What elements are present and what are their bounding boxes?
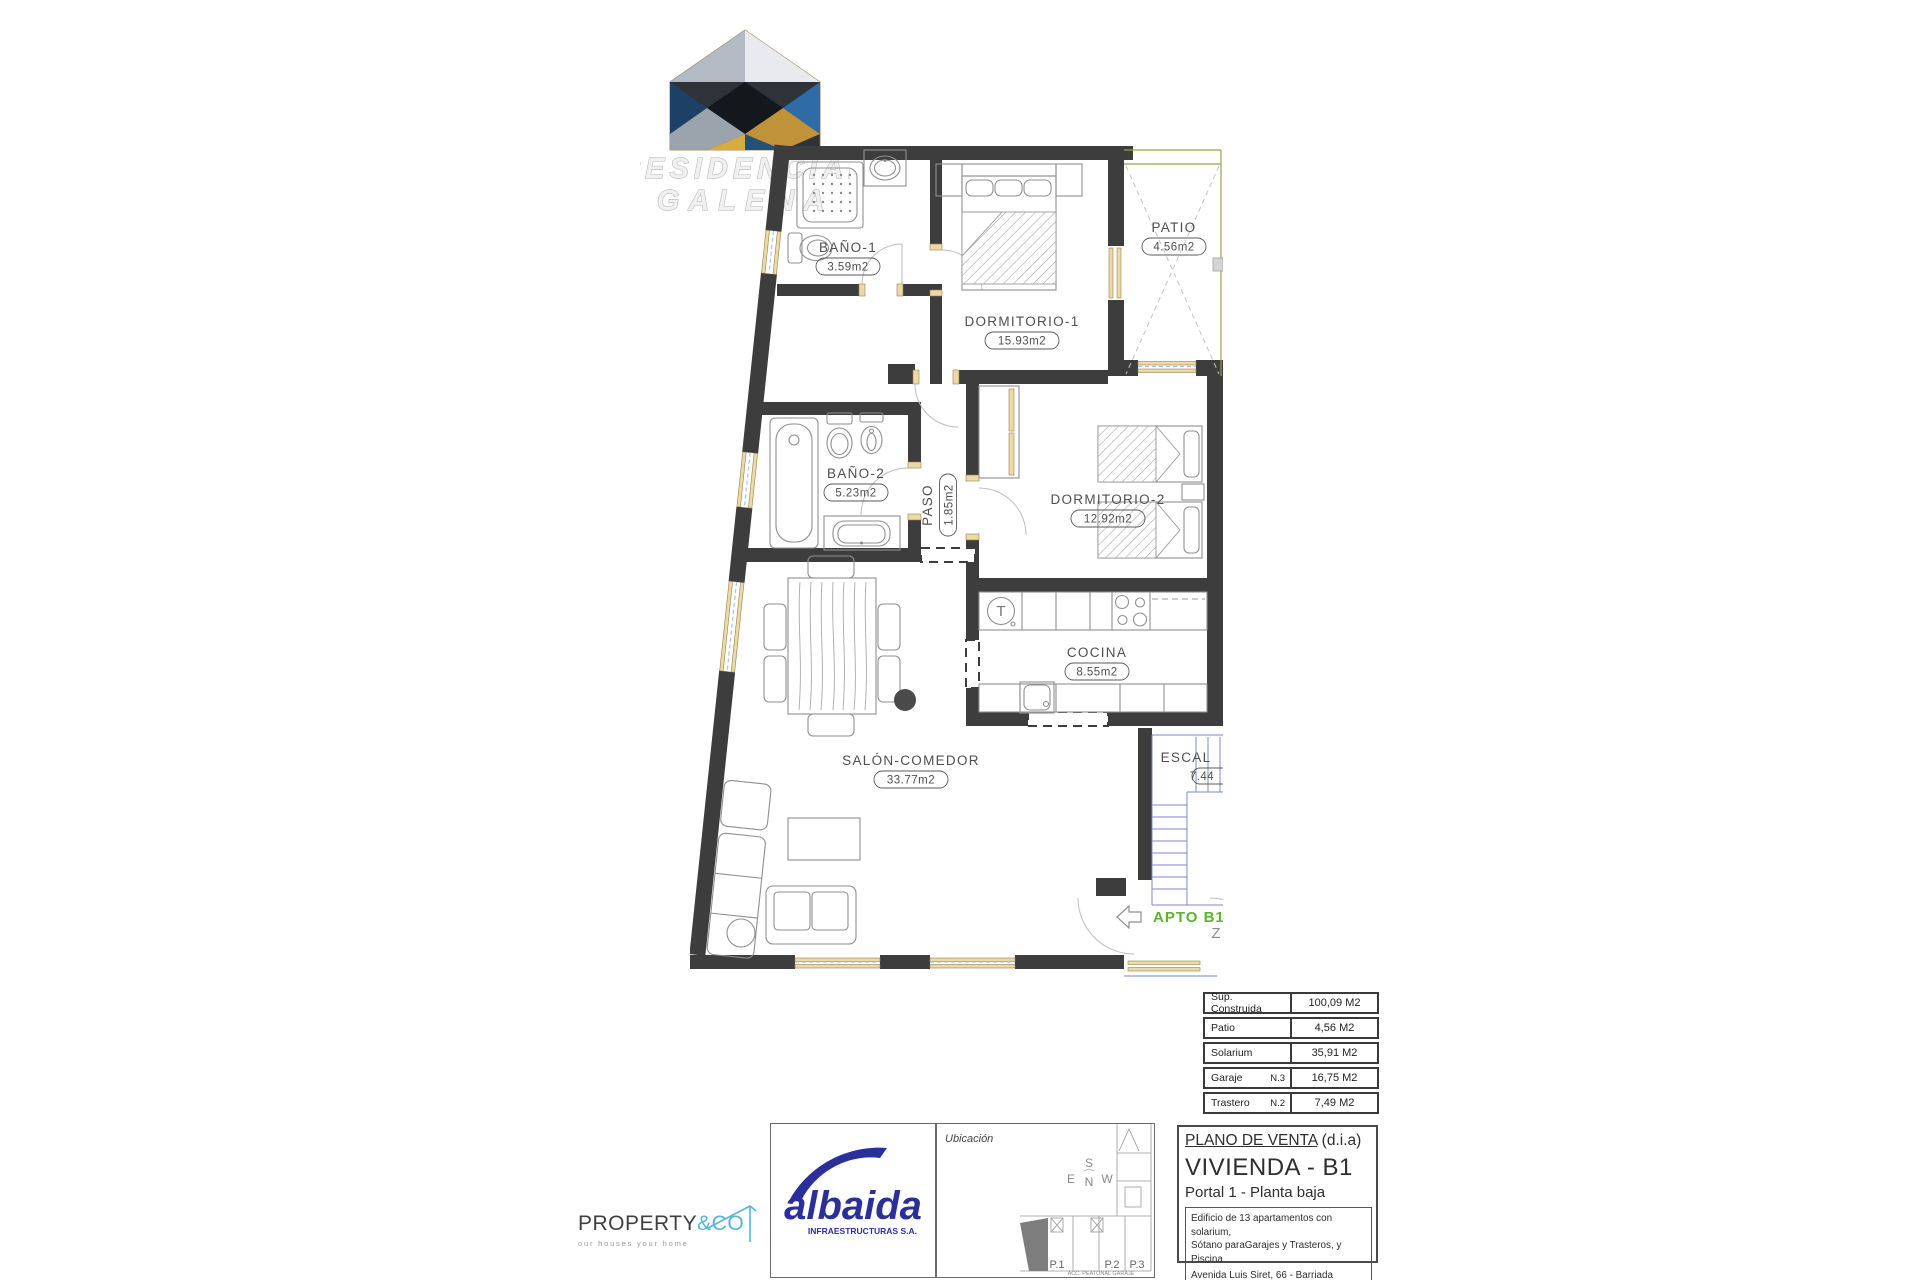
row-label: Sup. Construida — [1211, 991, 1285, 1015]
label-dorm1: DORMITORIO-1 — [964, 314, 1079, 329]
location-panel: Ubicación S E N W P.1 P.2 — [936, 1123, 1155, 1278]
area-escalera: 7.44 — [1190, 771, 1214, 783]
property-co-logo: PROPERTY&CO our houses your home — [578, 1212, 808, 1248]
armchair — [720, 780, 772, 831]
compass-w: W — [1101, 1172, 1113, 1186]
floor-plan-page: RESIDENCIAL GALENA — [0, 0, 1920, 1280]
building-desc-line1: Edificio de 13 apartamentos con solarium… — [1191, 1212, 1366, 1239]
doc-type-main: PLANO DE VENTA — [1185, 1132, 1317, 1149]
portal-3-label: P.3 — [1129, 1259, 1144, 1271]
window-salon — [720, 581, 744, 672]
apto-label: APTO B1 — [1153, 909, 1223, 926]
row-value: 7,49 M2 — [1292, 1094, 1377, 1112]
building-desc-line2: Sótano paraGarajes y Trasteros, y Piscin… — [1191, 1239, 1366, 1266]
label-bano1: BAÑO-1 — [819, 240, 877, 255]
label-salon: SALÓN-COMEDOR — [842, 753, 980, 768]
floor-plan-drawing: T — [690, 130, 1223, 1000]
albaida-logo: albaida INFRAESTRUCTURAS S.A. — [771, 1124, 935, 1276]
doc-type: PLANO DE VENTA (d.i.a) — [1185, 1132, 1376, 1150]
albaida-panel: albaida INFRAESTRUCTURAS S.A. — [770, 1123, 936, 1278]
label-bano2: BAÑO-2 — [827, 466, 885, 481]
house-outline-icon — [706, 1200, 776, 1246]
row-value: 100,09 M2 — [1292, 994, 1377, 1012]
table-row: Solarium 35,91 M2 — [1203, 1042, 1379, 1064]
surface-summary-table: Sup. Construida 100,09 M2 Patio 4,56 M2 … — [1203, 992, 1379, 1117]
window-bano2 — [737, 452, 758, 508]
area-paso: 1.85m2 — [944, 484, 956, 525]
window-bano1 — [762, 230, 781, 274]
area-bano2: 5.23m2 — [835, 488, 876, 500]
window-patio-door — [1109, 248, 1121, 298]
opening-paso-salon — [921, 548, 975, 562]
patio-area — [1124, 150, 1223, 376]
label-dorm2: DORMITORIO-2 — [1050, 492, 1165, 507]
sink-2 — [824, 516, 900, 550]
area-salon: 33.77m2 — [887, 775, 935, 787]
window-salon-south-2 — [930, 958, 1015, 968]
row-label: Trastero — [1211, 1097, 1250, 1109]
label-patio: PATIO — [1151, 220, 1196, 235]
label-cocina: COCINA — [1067, 645, 1127, 660]
window-entry-south — [1124, 961, 1217, 976]
address-line1: Avenida Luis Siret, 66 - Barriada HERRER… — [1191, 1269, 1366, 1280]
opening-cocina-west — [966, 640, 979, 688]
area-patio: 4.56m2 — [1153, 242, 1194, 254]
salon-furniture — [727, 556, 916, 947]
portal-2-label: P.2 — [1104, 1259, 1119, 1271]
title-block: PLANO DE VENTA (d.i.a) VIVIENDA - B1 Por… — [1177, 1125, 1378, 1263]
table-row: Patio 4,56 M2 — [1203, 1017, 1379, 1039]
sofa-bottom — [766, 886, 856, 944]
window-salon-south-1 — [795, 958, 880, 968]
table-row: GarajeN.3 16,75 M2 — [1203, 1067, 1379, 1089]
dining-table — [764, 556, 900, 736]
column — [894, 689, 916, 711]
area-dorm2: 12.92m2 — [1084, 514, 1132, 526]
building-footprint — [1020, 1218, 1048, 1271]
location-label: Ubicación — [945, 1133, 993, 1145]
side-table — [727, 919, 755, 947]
label-paso: PASO — [920, 484, 935, 526]
property-wordmark: PROPERTY&CO — [578, 1212, 744, 1236]
row-note: N.2 — [1270, 1098, 1285, 1109]
washer-mark: T — [996, 603, 1005, 620]
table-row: Sup. Construida 100,09 M2 — [1203, 992, 1379, 1014]
building-info-box: Edificio de 13 apartamentos con solarium… — [1185, 1207, 1372, 1280]
portal-floor: Portal 1 - Planta baja — [1185, 1184, 1376, 1201]
row-note: N.3 — [1270, 1073, 1285, 1084]
portal-1-label: P.1 — [1049, 1259, 1064, 1271]
doc-type-suffix: (d.i.a) — [1317, 1132, 1361, 1149]
label-escalera: ESCAL — [1161, 750, 1212, 765]
toilet-2 — [827, 413, 852, 458]
row-value: 4,56 M2 — [1292, 1019, 1377, 1037]
bidet — [860, 413, 883, 454]
area-dorm1: 15.93m2 — [998, 336, 1046, 348]
bano2-fixtures — [770, 413, 900, 550]
row-value: 35,91 M2 — [1292, 1044, 1377, 1062]
entry-annotations: APTO B1 Z — [1117, 906, 1223, 942]
entry-arrow-icon — [1117, 906, 1141, 928]
window-dorm2 — [1138, 362, 1196, 373]
map-footnote: ACC. PEATONAL GARAJE — [1068, 1271, 1135, 1276]
bathtub — [770, 418, 818, 548]
dorm1-furniture — [936, 164, 1082, 290]
row-label: Solarium — [1211, 1047, 1252, 1059]
row-value: 16,75 M2 — [1292, 1069, 1377, 1087]
row-label: Garaje — [1211, 1072, 1243, 1084]
location-map: Ubicación S E N W P.1 P.2 — [937, 1124, 1154, 1276]
table-row: TrasteroN.2 7,49 M2 — [1203, 1092, 1379, 1114]
opening-cocina-south — [1028, 712, 1108, 726]
dorm2-furniture — [979, 386, 1204, 558]
property-word: PROPERTY — [578, 1212, 697, 1235]
unit-title: VIVIENDA - B1 — [1185, 1154, 1376, 1182]
area-cocina: 8.55m2 — [1076, 667, 1117, 679]
compass-icon: S E N W — [1067, 1156, 1113, 1189]
z-mark: Z — [1211, 925, 1220, 942]
compass-n: N — [1085, 1175, 1094, 1189]
row-label: Patio — [1211, 1022, 1235, 1034]
albaida-subtitle: INFRAESTRUCTURAS S.A. — [808, 1226, 917, 1236]
compass-s: S — [1085, 1156, 1093, 1170]
tv-cabinet — [788, 818, 860, 860]
area-bano1: 3.59m2 — [827, 262, 868, 274]
compass-e: E — [1067, 1172, 1075, 1186]
